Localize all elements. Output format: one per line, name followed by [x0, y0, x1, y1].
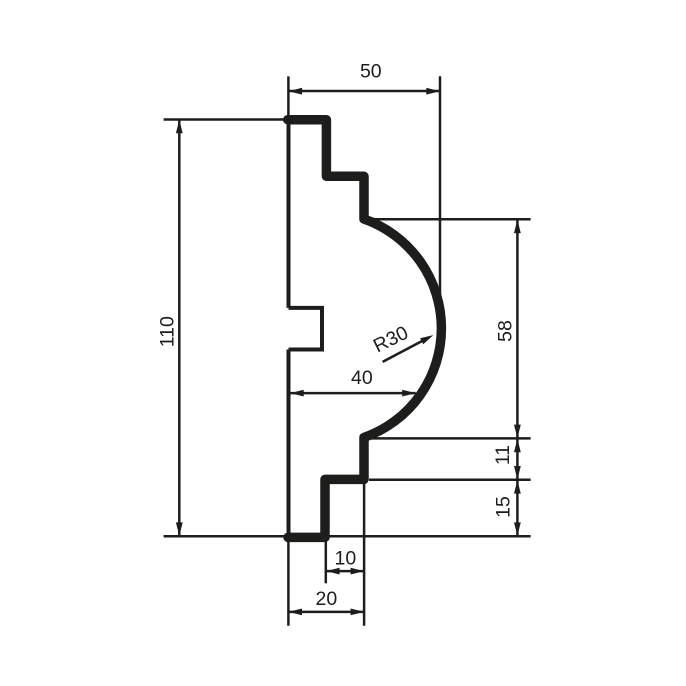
svg-text:11: 11	[492, 445, 514, 465]
svg-text:10: 10	[335, 547, 357, 569]
svg-text:110: 110	[157, 316, 179, 347]
svg-text:20: 20	[316, 588, 338, 610]
svg-text:15: 15	[493, 496, 515, 518]
svg-text:50: 50	[360, 60, 382, 82]
svg-text:40: 40	[351, 367, 373, 389]
svg-text:58: 58	[495, 320, 517, 342]
